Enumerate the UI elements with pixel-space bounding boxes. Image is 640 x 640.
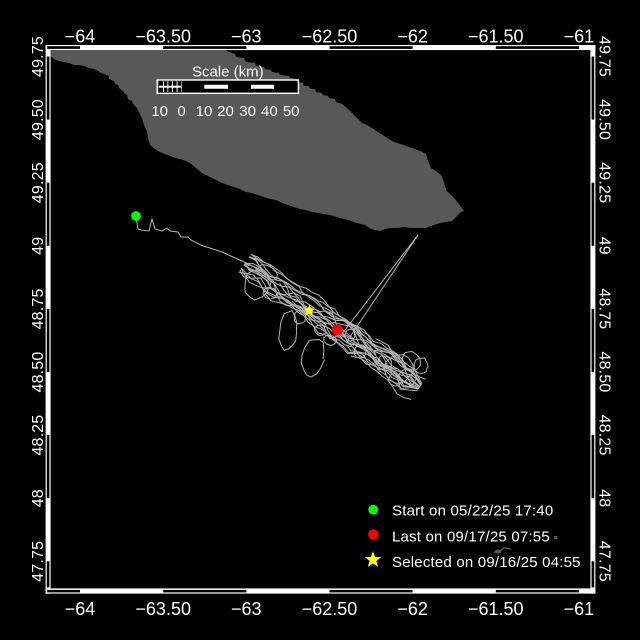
svg-text:0: 0 [177, 103, 185, 120]
svg-text:48.25: 48.25 [596, 415, 613, 456]
svg-text:Last on 09/17/25 07:55: Last on 09/17/25 07:55 [392, 529, 550, 546]
svg-text:48.75: 48.75 [596, 288, 613, 329]
svg-text:30: 30 [239, 103, 256, 120]
svg-text:48.50: 48.50 [30, 351, 47, 392]
svg-text:Start on 05/22/25 17:40: Start on 05/22/25 17:40 [392, 503, 553, 520]
svg-text:−63.50: −63.50 [135, 599, 191, 619]
svg-text:−63: −63 [231, 26, 262, 46]
svg-text:−62: −62 [397, 26, 428, 46]
svg-text:−61: −61 [564, 26, 595, 46]
svg-text:−62: −62 [397, 599, 428, 619]
svg-text:−61: −61 [564, 599, 595, 619]
svg-text:49.50: 49.50 [30, 99, 47, 140]
svg-text:−64: −64 [65, 599, 96, 619]
svg-text:−62.50: −62.50 [302, 26, 358, 46]
svg-text:−63.50: −63.50 [135, 26, 191, 46]
svg-text:49.75: 49.75 [30, 36, 47, 77]
svg-text:47.75: 47.75 [30, 541, 47, 582]
svg-text:47.75: 47.75 [596, 541, 613, 582]
svg-text:20: 20 [217, 103, 234, 120]
svg-text:48.75: 48.75 [30, 288, 47, 329]
svg-text:48: 48 [30, 489, 47, 507]
svg-text:49.50: 49.50 [596, 99, 613, 140]
svg-text:−61.50: −61.50 [468, 599, 524, 619]
svg-text:−63: −63 [231, 599, 262, 619]
svg-text:−61.50: −61.50 [468, 26, 524, 46]
svg-text:−64: −64 [65, 26, 96, 46]
svg-text:50: 50 [283, 103, 300, 120]
svg-text:−62.50: −62.50 [302, 599, 358, 619]
svg-text:49: 49 [30, 237, 47, 255]
svg-text:49.75: 49.75 [596, 36, 613, 77]
svg-text:Scale (km): Scale (km) [192, 64, 264, 81]
svg-text:49.25: 49.25 [30, 162, 47, 203]
svg-text:48: 48 [596, 489, 613, 507]
svg-text:48.25: 48.25 [30, 415, 47, 456]
svg-text:10: 10 [196, 103, 213, 120]
svg-text:Selected on 09/16/25 04:55: Selected on 09/16/25 04:55 [392, 554, 581, 571]
svg-text:10: 10 [151, 103, 168, 120]
svg-text:48.50: 48.50 [596, 351, 613, 392]
svg-text:49: 49 [596, 237, 613, 255]
svg-text:49.25: 49.25 [596, 162, 613, 203]
svg-text:40: 40 [261, 103, 278, 120]
